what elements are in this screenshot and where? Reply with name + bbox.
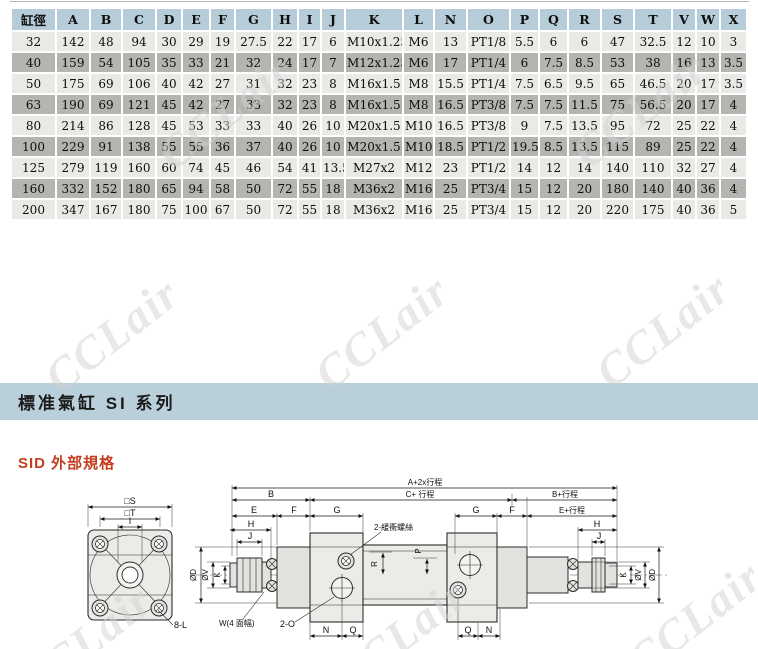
port-label: 2-O — [280, 619, 295, 629]
table-cell: 17 — [299, 53, 320, 72]
dim-label-e-stroke: E+行程 — [559, 505, 585, 515]
table-cell: 72 — [273, 179, 297, 198]
table-cell: M36x2 — [346, 200, 402, 219]
table-cell: 10 — [322, 137, 344, 156]
table-cell: 55 — [299, 200, 320, 219]
column-header: B — [91, 9, 121, 30]
table-cell: 110 — [635, 158, 671, 177]
column-header: K — [346, 9, 402, 30]
column-header: E — [183, 9, 209, 30]
table-cell: 27 — [697, 158, 719, 177]
table-cell: 16 — [673, 53, 695, 72]
table-cell: 7.5 — [540, 116, 567, 135]
table-cell: 80 — [12, 116, 55, 135]
cushion-screw-label: 2-緩衝螺絲 — [374, 522, 413, 532]
table-cell: 17 — [697, 95, 719, 114]
dim-label-dia-d: ØD — [648, 569, 657, 581]
table-cell: 13 — [697, 53, 719, 72]
column-header: D — [157, 9, 181, 30]
table-cell: 140 — [602, 158, 633, 177]
section-band: 標准氣缸 SI 系列 — [0, 383, 758, 420]
table-cell: 40 — [273, 137, 297, 156]
table-cell: 9.5 — [569, 74, 600, 93]
column-header: 缸徑 — [12, 9, 55, 30]
table-cell: 138 — [123, 137, 155, 156]
table-cell: 4 — [721, 116, 746, 135]
table-cell: 16.5 — [435, 116, 466, 135]
table-cell: 75 — [602, 95, 633, 114]
spec-table-body: 32142489430291927.522176M10x1.25M613PT1/… — [12, 32, 746, 219]
table-row: 200347167180751006750725518M36x2M1625PT3… — [12, 200, 746, 219]
table-cell: 180 — [123, 179, 155, 198]
table-cell: 55 — [183, 137, 209, 156]
spec-table: 缸徑ABCDEFGHIJKLNOPQRSTVWX 321424894302919… — [10, 7, 748, 221]
table-cell: M20x1.5 — [346, 116, 402, 135]
table-cell: 36 — [697, 179, 719, 198]
table-cell: 12 — [673, 32, 695, 51]
table-cell: 5 — [721, 200, 746, 219]
table-cell: 8 — [322, 74, 344, 93]
table-cell: M12 — [404, 158, 433, 177]
dim-label-q: Q — [464, 625, 471, 635]
table-cell: 27 — [211, 95, 234, 114]
table-cell: 214 — [57, 116, 89, 135]
column-header: J — [322, 9, 344, 30]
side-view — [190, 533, 668, 622]
table-cell: 128 — [123, 116, 155, 135]
table-cell: 7 — [322, 53, 344, 72]
table-cell: 4 — [721, 179, 746, 198]
table-cell: 13 — [435, 32, 466, 51]
table-cell: 17 — [299, 32, 320, 51]
dim-label-r: R — [370, 561, 379, 567]
table-cell: 21 — [211, 53, 234, 72]
table-cell: 37 — [236, 137, 271, 156]
dim-label-k: K — [213, 572, 222, 578]
table-cell: PT3/8 — [468, 116, 509, 135]
table-cell: 9 — [511, 116, 538, 135]
table-cell: 25 — [673, 137, 695, 156]
table-cell: 40 — [673, 179, 695, 198]
column-header: I — [299, 9, 320, 30]
table-cell: 6 — [511, 53, 538, 72]
column-header: H — [273, 9, 297, 30]
table-cell: 33 — [183, 53, 209, 72]
table-cell: 46.5 — [635, 74, 671, 93]
dim-label-c-stroke: C+ 行程 — [406, 489, 435, 499]
table-cell: 35 — [157, 53, 181, 72]
column-header: T — [635, 9, 671, 30]
table-cell: 11.5 — [569, 95, 600, 114]
table-cell: 14 — [511, 158, 538, 177]
table-cell: 19.5 — [511, 137, 538, 156]
table-cell: M10 — [404, 137, 433, 156]
cushion-screw-right — [450, 582, 466, 598]
table-row: 16033215218065945850725518M36x2M1625PT3/… — [12, 179, 746, 198]
table-cell: 45 — [211, 158, 234, 177]
table-cell: 26 — [299, 137, 320, 156]
table-cell: 26 — [299, 116, 320, 135]
table-cell: 40 — [273, 116, 297, 135]
table-cell: 42 — [183, 95, 209, 114]
table-cell: 100 — [12, 137, 55, 156]
table-cell: 25 — [435, 200, 466, 219]
table-cell: 69 — [91, 74, 121, 93]
table-cell: 42 — [183, 74, 209, 93]
table-cell: 60 — [157, 158, 181, 177]
table-cell: 94 — [123, 32, 155, 51]
table-cell: 7.5 — [511, 74, 538, 93]
table-cell: M12x1.25 — [346, 53, 402, 72]
top-rule — [10, 1, 749, 2]
table-cell: 125 — [12, 158, 55, 177]
table-cell: 32 — [12, 32, 55, 51]
dim-label-b: B — [268, 489, 274, 499]
table-cell: 17 — [435, 53, 466, 72]
dim-label-dia-v: ØV — [201, 569, 210, 581]
cushion-screw-left — [338, 553, 354, 569]
dim-label-q: Q — [349, 625, 356, 635]
table-row: 32142489430291927.522176M10x1.25M613PT1/… — [12, 32, 746, 51]
column-header: L — [404, 9, 433, 30]
table-cell: PT3/4 — [468, 200, 509, 219]
table-cell: 8.5 — [569, 53, 600, 72]
table-row: 50175691064042273132238M16x1.5M815.5PT1/… — [12, 74, 746, 93]
dim-label-b-stroke: B+行程 — [552, 489, 578, 499]
table-cell: M16x1.5 — [346, 95, 402, 114]
table-cell: 94 — [183, 179, 209, 198]
front-view: □S □T I 8-L — [88, 496, 187, 630]
table-cell: 6 — [569, 32, 600, 51]
table-cell: 14 — [569, 158, 600, 177]
table-cell: M8 — [404, 95, 433, 114]
column-header: N — [435, 9, 466, 30]
table-cell: 58 — [211, 179, 234, 198]
dim-label-f: F — [509, 505, 515, 515]
table-cell: 30 — [157, 32, 181, 51]
table-cell: 32 — [273, 74, 297, 93]
dim-label-s: □S — [124, 496, 135, 506]
table-cell: 67 — [211, 200, 234, 219]
table-cell: 91 — [91, 137, 121, 156]
table-cell: 7.5 — [540, 95, 567, 114]
table-cell: 38 — [635, 53, 671, 72]
table-cell: 7.5 — [511, 95, 538, 114]
table-cell: 36 — [211, 137, 234, 156]
table-cell: 46 — [236, 158, 271, 177]
table-cell: 18 — [322, 200, 344, 219]
table-cell: 167 — [91, 200, 121, 219]
table-cell: 33 — [236, 95, 271, 114]
column-header: Q — [540, 9, 567, 30]
table-cell: 3 — [721, 32, 746, 51]
table-cell: 65 — [157, 179, 181, 198]
table-cell: 45 — [157, 95, 181, 114]
table-cell: 16.5 — [435, 95, 466, 114]
table-cell: 56.5 — [635, 95, 671, 114]
table-row: 12527911916060744546544113.5M27x2M1223PT… — [12, 158, 746, 177]
dim-label-j: J — [248, 531, 253, 541]
table-cell: 20 — [673, 74, 695, 93]
table-cell: 65 — [602, 74, 633, 93]
table-cell: 4 — [721, 95, 746, 114]
catalog-page: 缸徑ABCDEFGHIJKLNOPQRSTVWX 321424894302919… — [0, 0, 758, 649]
table-cell: PT1/8 — [468, 32, 509, 51]
table-cell: 69 — [91, 95, 121, 114]
table-cell: 55 — [299, 179, 320, 198]
dim-label-n: N — [486, 625, 493, 635]
table-cell: M20x1.5 — [346, 137, 402, 156]
column-header: C — [123, 9, 155, 30]
column-header: F — [211, 9, 234, 30]
table-cell: 74 — [183, 158, 209, 177]
table-cell: 15 — [511, 200, 538, 219]
table-cell: 121 — [123, 95, 155, 114]
column-header: A — [57, 9, 89, 30]
table-cell: 15 — [511, 179, 538, 198]
column-header: P — [511, 9, 538, 30]
table-cell: 12 — [540, 179, 567, 198]
table-cell: 50 — [12, 74, 55, 93]
table-cell: 10 — [322, 116, 344, 135]
table-cell: 23 — [299, 74, 320, 93]
table-row: 802148612845533333402610M20x1.5M1016.5PT… — [12, 116, 746, 135]
table-cell: 20 — [569, 179, 600, 198]
table-cell: 89 — [635, 137, 671, 156]
column-header: V — [673, 9, 695, 30]
table-cell: 7.5 — [540, 53, 567, 72]
table-cell: 24 — [273, 53, 297, 72]
header-row: 缸徑ABCDEFGHIJKLNOPQRSTVWX — [12, 9, 746, 30]
dim-label-k: K — [619, 572, 628, 578]
table-row: 63190691214542273332238M16x1.5M816.5PT3/… — [12, 95, 746, 114]
table-cell: M10 — [404, 116, 433, 135]
table-cell: PT1/4 — [468, 53, 509, 72]
dim-label-8l: 8-L — [174, 620, 187, 630]
table-cell: 36 — [697, 200, 719, 219]
table-cell: 95 — [602, 116, 633, 135]
table-cell: 25 — [673, 116, 695, 135]
table-row: 40159541053533213224177M12x1.25M617PT1/4… — [12, 53, 746, 72]
table-cell: 25 — [435, 179, 466, 198]
table-cell: 180 — [123, 200, 155, 219]
table-cell: M16x1.5 — [346, 74, 402, 93]
table-cell: 40 — [12, 53, 55, 72]
table-cell: 4 — [721, 158, 746, 177]
table-cell: 220 — [602, 200, 633, 219]
dim-label-g: G — [333, 505, 340, 515]
table-cell: M6 — [404, 32, 433, 51]
column-header: S — [602, 9, 633, 30]
dim-label-dia-v: ØV — [634, 569, 643, 581]
table-cell: 19 — [211, 32, 234, 51]
watermark-text: CCLair — [305, 263, 460, 400]
table-cell: 31 — [236, 74, 271, 93]
table-cell: 100 — [183, 200, 209, 219]
table-cell: PT1/2 — [468, 137, 509, 156]
table-cell: PT3/8 — [468, 95, 509, 114]
table-cell: 12 — [540, 158, 567, 177]
table-cell: 54 — [273, 158, 297, 177]
table-cell: 12 — [540, 200, 567, 219]
table-cell: 33 — [211, 116, 234, 135]
table-cell: 22 — [697, 137, 719, 156]
table-cell: 8.5 — [540, 137, 567, 156]
table-cell: M8 — [404, 74, 433, 93]
table-cell: M36x2 — [346, 179, 402, 198]
table-cell: 53 — [602, 53, 633, 72]
table-cell: 17 — [697, 74, 719, 93]
table-cell: PT1/2 — [468, 158, 509, 177]
dim-label-f: F — [291, 505, 297, 515]
table-cell: 63 — [12, 95, 55, 114]
table-cell: 22 — [697, 116, 719, 135]
table-cell: 140 — [635, 179, 671, 198]
table-cell: 32 — [673, 158, 695, 177]
table-cell: M10x1.25 — [346, 32, 402, 51]
table-cell: 10 — [697, 32, 719, 51]
table-cell: 32 — [273, 95, 297, 114]
table-cell: 41 — [299, 158, 320, 177]
table-cell: 23 — [435, 158, 466, 177]
dim-label-i: I — [129, 516, 132, 526]
table-cell: 20 — [673, 95, 695, 114]
table-cell: 55 — [157, 137, 181, 156]
table-cell: 27 — [211, 74, 234, 93]
table-cell: 115 — [602, 137, 633, 156]
table-cell: 5.5 — [511, 32, 538, 51]
table-cell: 8 — [322, 95, 344, 114]
table-cell: 23 — [299, 95, 320, 114]
table-cell: 15.5 — [435, 74, 466, 93]
table-cell: 18 — [322, 179, 344, 198]
table-cell: 347 — [57, 200, 89, 219]
dim-label-h: H — [594, 519, 601, 529]
table-cell: 72 — [635, 116, 671, 135]
dim-label-p: P — [414, 548, 423, 553]
table-cell: 229 — [57, 137, 89, 156]
table-cell: 6 — [322, 32, 344, 51]
table-cell: 6.5 — [540, 74, 567, 93]
rod-flats-label: W(4 面幅) — [219, 618, 255, 628]
table-cell: 50 — [236, 179, 271, 198]
column-header: O — [468, 9, 509, 30]
table-cell: 72 — [273, 200, 297, 219]
table-cell: 53 — [183, 116, 209, 135]
table-cell: M16 — [404, 200, 433, 219]
table-cell: 40 — [157, 74, 181, 93]
table-row: 1002299113855553637402610M20x1.5M1018.5P… — [12, 137, 746, 156]
column-header: W — [697, 9, 719, 30]
table-cell: 13.5 — [569, 137, 600, 156]
table-cell: 18.5 — [435, 137, 466, 156]
table-cell: M27x2 — [346, 158, 402, 177]
table-cell: 45 — [157, 116, 181, 135]
table-cell: 33 — [236, 116, 271, 135]
table-cell: 200 — [12, 200, 55, 219]
table-cell: 180 — [602, 179, 633, 198]
dim-label-e: E — [251, 505, 257, 515]
dim-label-j: J — [597, 531, 602, 541]
column-header: X — [721, 9, 746, 30]
table-cell: PT1/4 — [468, 74, 509, 93]
table-cell: 159 — [57, 53, 89, 72]
table-cell: 160 — [12, 179, 55, 198]
table-cell: 47 — [602, 32, 633, 51]
dim-label-g: G — [472, 505, 479, 515]
table-cell: 175 — [635, 200, 671, 219]
dim-label-a-total: A+2x行程 — [408, 477, 442, 487]
table-cell: 160 — [123, 158, 155, 177]
table-cell: 32 — [236, 53, 271, 72]
table-cell: 48 — [91, 32, 121, 51]
table-cell: 40 — [673, 200, 695, 219]
table-cell: 86 — [91, 116, 121, 135]
table-cell: 27.5 — [236, 32, 271, 51]
table-cell: 175 — [57, 74, 89, 93]
table-cell: 190 — [57, 95, 89, 114]
section-title: 標准氣缸 SI 系列 — [18, 389, 176, 414]
table-cell: 32.5 — [635, 32, 671, 51]
table-cell: 20 — [569, 200, 600, 219]
table-cell: 3.5 — [721, 53, 746, 72]
table-cell: 75 — [157, 200, 181, 219]
table-cell: 279 — [57, 158, 89, 177]
table-cell: 106 — [123, 74, 155, 93]
dimension-drawing: □S □T I 8-L ØD ØV K — [0, 470, 758, 649]
table-cell: M16 — [404, 179, 433, 198]
column-header: R — [569, 9, 600, 30]
table-cell: 54 — [91, 53, 121, 72]
dim-label-n: N — [323, 625, 330, 635]
table-cell: 50 — [236, 200, 271, 219]
watermark-text: CCLair — [586, 261, 741, 398]
table-cell: 22 — [273, 32, 297, 51]
column-header: G — [236, 9, 271, 30]
table-cell: PT3/4 — [468, 179, 509, 198]
table-cell: 3.5 — [721, 74, 746, 93]
table-cell: 142 — [57, 32, 89, 51]
table-cell: 4 — [721, 137, 746, 156]
table-cell: 13.5 — [322, 158, 344, 177]
table-cell: 119 — [91, 158, 121, 177]
table-cell: 13.5 — [569, 116, 600, 135]
table-cell: 29 — [183, 32, 209, 51]
table-cell: 332 — [57, 179, 89, 198]
table-cell: 152 — [91, 179, 121, 198]
table-cell: M6 — [404, 53, 433, 72]
table-cell: 105 — [123, 53, 155, 72]
table-cell: 6 — [540, 32, 567, 51]
dim-label-h: H — [248, 519, 255, 529]
